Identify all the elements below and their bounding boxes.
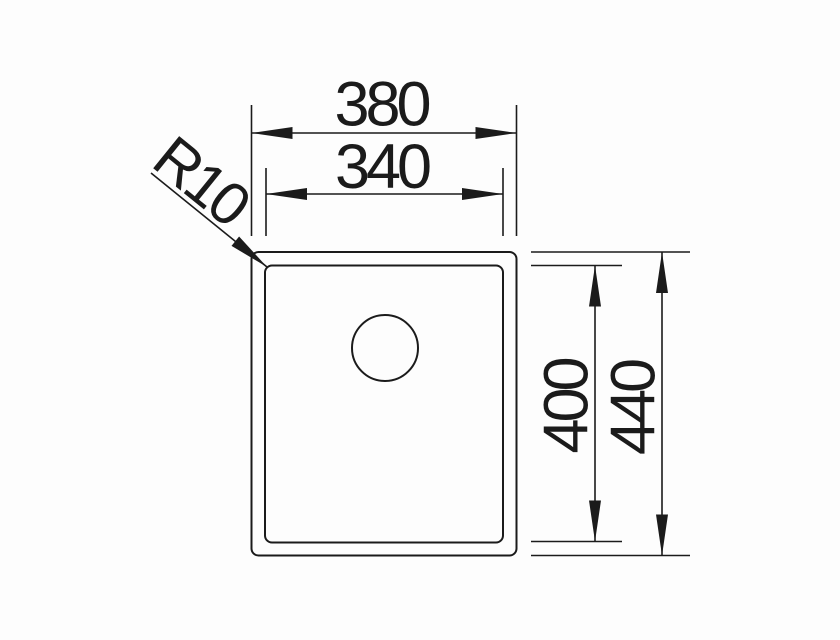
svg-text:440: 440: [599, 360, 669, 455]
svg-text:340: 340: [335, 132, 430, 202]
svg-text:400: 400: [532, 358, 602, 453]
svg-text:380: 380: [334, 70, 429, 140]
